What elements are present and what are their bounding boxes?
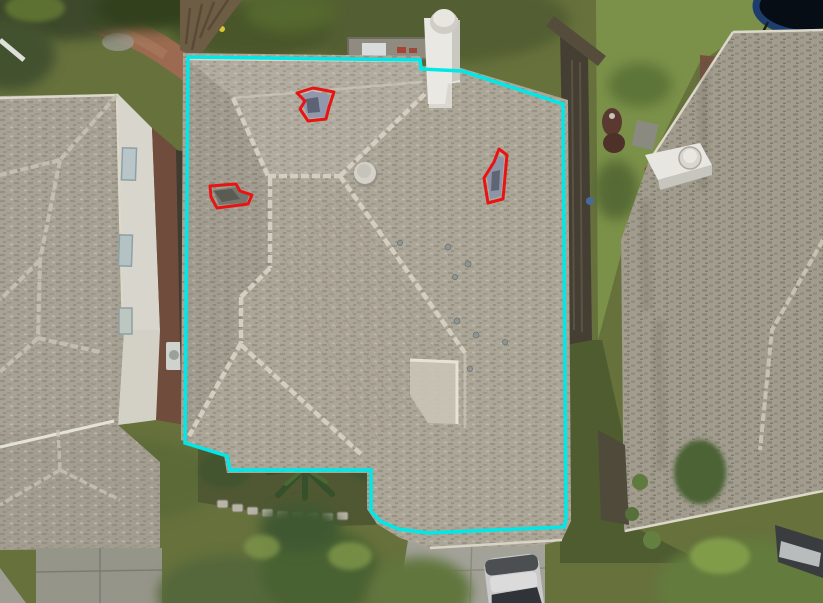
plant [625,507,639,521]
parked-car [483,553,545,603]
left-roof-lower-texture [0,425,160,550]
deck-red-item [397,47,406,53]
main-roof [181,9,571,548]
bush-highlight [244,535,280,559]
plant [632,474,648,490]
grill-knob [609,113,615,119]
bush-highlight [690,538,750,574]
bush-right [674,440,726,504]
damage-patch-dark [306,97,320,113]
chimney-cap-top [433,9,455,27]
grill-base [603,133,625,153]
grill [602,108,622,136]
left-patio [36,548,162,603]
window [121,148,136,180]
deck-metal-unit [362,43,386,57]
right-chimney-cap-top [683,149,697,163]
path-stone [102,33,134,51]
window [118,235,132,266]
damage-patch-dark [491,170,500,191]
left-house-wall-lower [118,330,160,425]
aerial-photo [0,0,823,603]
plant [643,531,661,549]
left-roof-texture [0,94,124,432]
deck-red-item [409,48,417,53]
window [119,308,132,334]
grass-shade [608,63,672,107]
aerial-photo-canvas [0,0,823,603]
ac-fan [169,350,179,360]
blue-toy [586,197,594,205]
bush-highlight [328,542,372,570]
left-house [0,94,188,603]
